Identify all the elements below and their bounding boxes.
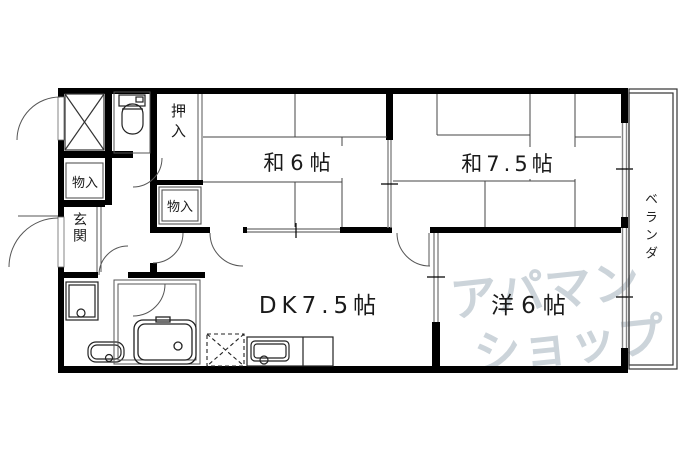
floor-plan: アパマン ショップ [0, 0, 690, 460]
sliding-door-wa6-dk [247, 229, 340, 232]
label-oshiire: 押入 [168, 103, 189, 143]
appliance-space-dashed [207, 334, 244, 366]
window-yo6 [623, 228, 627, 348]
oshiire-fusuma-front [198, 94, 202, 180]
room-label-wa6: 和6帖 [243, 146, 357, 178]
window-wa75 [623, 123, 627, 217]
closet-door-arc [17, 97, 60, 140]
label-genkan: 玄関 [69, 212, 89, 244]
floor-plan-drawing [0, 0, 690, 460]
hall-dk-door-arc [153, 233, 183, 263]
dk-corner-door-arc [210, 233, 243, 266]
washer-pan-icon [66, 282, 98, 320]
washroom-door-arc [99, 246, 128, 275]
genkan-step-edge [97, 207, 101, 272]
label-monoire-upper: 物入 [67, 172, 103, 191]
room-label-yo6: 洋6帖 [482, 286, 582, 320]
toilet-icon [119, 95, 145, 134]
kitchen-sink-icon [247, 337, 333, 366]
walls [58, 88, 628, 373]
storage-x-closet [65, 94, 104, 150]
bathroom-door-arc [133, 284, 165, 316]
label-monoire-lower: 物入 [160, 196, 200, 215]
entrance-door-arc [9, 218, 58, 267]
wash-basin-icon [88, 342, 124, 362]
label-veranda: ベランダ [640, 192, 659, 264]
room-label-dk: DK7.5帖 [250, 286, 390, 320]
wa75-dk-door-arc [397, 233, 430, 266]
bathtub-icon [134, 317, 196, 364]
room-label-wa75: 和7.5帖 [437, 147, 581, 179]
